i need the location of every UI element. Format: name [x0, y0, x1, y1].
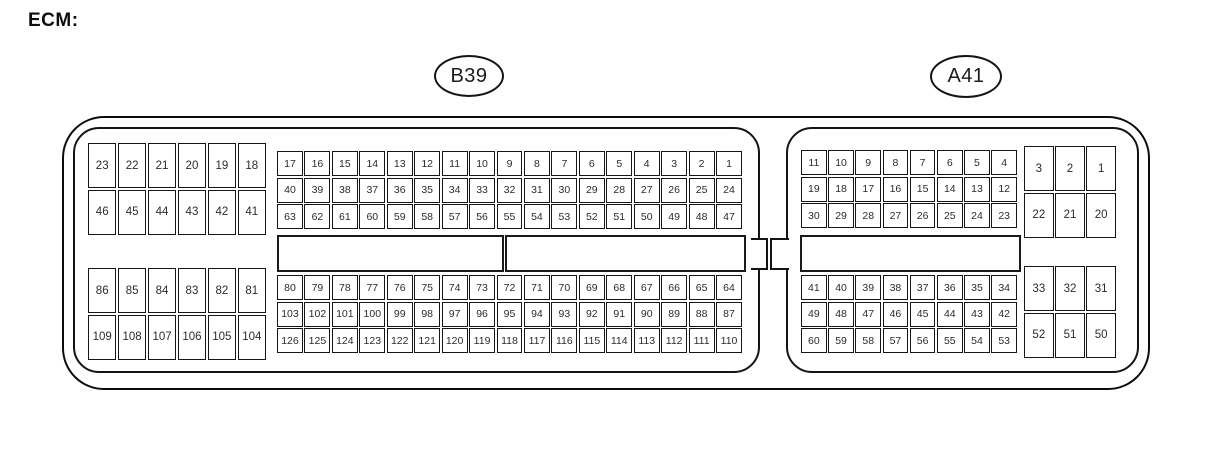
pin-53: 53 — [991, 328, 1017, 353]
pin-73: 73 — [469, 275, 495, 300]
pin-17: 17 — [855, 177, 881, 202]
pin-58: 58 — [855, 328, 881, 353]
pin-86: 86 — [88, 268, 116, 313]
pin-33: 33 — [1024, 266, 1054, 311]
pin-6: 6 — [937, 150, 963, 175]
pin-59: 59 — [828, 328, 854, 353]
pin-12: 12 — [414, 151, 440, 176]
pin-47: 47 — [855, 302, 881, 327]
pin-106: 106 — [178, 315, 206, 360]
pin-39: 39 — [855, 275, 881, 300]
pin-31: 31 — [1086, 266, 1116, 311]
pin-57: 57 — [442, 204, 468, 229]
pin-103: 103 — [277, 302, 303, 327]
pin-44: 44 — [148, 190, 176, 235]
pin-8: 8 — [883, 150, 909, 175]
pin-43: 43 — [964, 302, 990, 327]
pin-40: 40 — [277, 178, 303, 203]
pin-35: 35 — [414, 178, 440, 203]
connector-label-a41-text: A41 — [947, 65, 984, 88]
pin-36: 36 — [937, 275, 963, 300]
pin-7: 7 — [910, 150, 936, 175]
pin-126: 126 — [277, 328, 303, 353]
pin-125: 125 — [304, 328, 330, 353]
pin-74: 74 — [442, 275, 468, 300]
pin-109: 109 — [88, 315, 116, 360]
pin-46: 46 — [883, 302, 909, 327]
pin-123: 123 — [359, 328, 385, 353]
pin-119: 119 — [469, 328, 495, 353]
ecm-connector-pinout-diagram: ECM: B39 A41 232221201918464544434241 86… — [0, 0, 1210, 474]
pin-57: 57 — [883, 328, 909, 353]
pin-105: 105 — [208, 315, 236, 360]
b39-side-tab — [751, 238, 768, 270]
pin-107: 107 — [148, 315, 176, 360]
pin-97: 97 — [442, 302, 468, 327]
pin-110: 110 — [716, 328, 742, 353]
pin-26: 26 — [661, 178, 687, 203]
b39-top-pin-grid: 1716151413121110987654321403938373635343… — [277, 151, 742, 229]
pin-75: 75 — [414, 275, 440, 300]
pin-4: 4 — [991, 150, 1017, 175]
pin-89: 89 — [661, 302, 687, 327]
pin-52: 52 — [1024, 313, 1054, 358]
pin-28: 28 — [855, 203, 881, 228]
pin-33: 33 — [469, 178, 495, 203]
pin-116: 116 — [551, 328, 577, 353]
pin-29: 29 — [828, 203, 854, 228]
pin-53: 53 — [551, 204, 577, 229]
pin-108: 108 — [118, 315, 146, 360]
pin-9: 9 — [497, 151, 523, 176]
a41-key-slot — [800, 235, 1021, 272]
a41-top-pin-grid: 1110987654191817161514131230292827262524… — [801, 150, 1017, 228]
pin-96: 96 — [469, 302, 495, 327]
pin-49: 49 — [661, 204, 687, 229]
pin-27: 27 — [634, 178, 660, 203]
pin-24: 24 — [964, 203, 990, 228]
pin-117: 117 — [524, 328, 550, 353]
pin-45: 45 — [910, 302, 936, 327]
pin-11: 11 — [801, 150, 827, 175]
pin-55: 55 — [937, 328, 963, 353]
pin-12: 12 — [991, 177, 1017, 202]
pin-44: 44 — [937, 302, 963, 327]
pin-122: 122 — [387, 328, 413, 353]
pin-50: 50 — [1086, 313, 1116, 358]
pin-7: 7 — [551, 151, 577, 176]
pin-93: 93 — [551, 302, 577, 327]
pin-13: 13 — [387, 151, 413, 176]
pin-41: 41 — [801, 275, 827, 300]
pin-42: 42 — [991, 302, 1017, 327]
pin-43: 43 — [178, 190, 206, 235]
pin-22: 22 — [1024, 193, 1054, 238]
pin-36: 36 — [387, 178, 413, 203]
pin-69: 69 — [579, 275, 605, 300]
pin-25: 25 — [937, 203, 963, 228]
pin-59: 59 — [387, 204, 413, 229]
pin-38: 38 — [332, 178, 358, 203]
pin-5: 5 — [964, 150, 990, 175]
pin-84: 84 — [148, 268, 176, 313]
pin-124: 124 — [332, 328, 358, 353]
pin-118: 118 — [497, 328, 523, 353]
pin-1: 1 — [716, 151, 742, 176]
pin-29: 29 — [579, 178, 605, 203]
pin-64: 64 — [716, 275, 742, 300]
pin-88: 88 — [689, 302, 715, 327]
pin-101: 101 — [332, 302, 358, 327]
pin-61: 61 — [332, 204, 358, 229]
pin-10: 10 — [828, 150, 854, 175]
pin-14: 14 — [937, 177, 963, 202]
pin-31: 31 — [524, 178, 550, 203]
pin-90: 90 — [634, 302, 660, 327]
pin-56: 56 — [910, 328, 936, 353]
pin-60: 60 — [359, 204, 385, 229]
b39-left-bottom-pin-block: 868584838281109108107106105104 — [88, 268, 266, 360]
pin-99: 99 — [387, 302, 413, 327]
pin-62: 62 — [304, 204, 330, 229]
pin-56: 56 — [469, 204, 495, 229]
pin-95: 95 — [497, 302, 523, 327]
pin-15: 15 — [332, 151, 358, 176]
pin-2: 2 — [689, 151, 715, 176]
pin-81: 81 — [238, 268, 266, 313]
pin-6: 6 — [579, 151, 605, 176]
pin-112: 112 — [661, 328, 687, 353]
pin-20: 20 — [1086, 193, 1116, 238]
connector-label-b39-text: B39 — [450, 65, 487, 88]
pin-63: 63 — [277, 204, 303, 229]
pin-79: 79 — [304, 275, 330, 300]
pin-25: 25 — [689, 178, 715, 203]
pin-10: 10 — [469, 151, 495, 176]
pin-104: 104 — [238, 315, 266, 360]
pin-46: 46 — [88, 190, 116, 235]
pin-54: 54 — [524, 204, 550, 229]
pin-58: 58 — [414, 204, 440, 229]
pin-60: 60 — [801, 328, 827, 353]
pin-35: 35 — [964, 275, 990, 300]
pin-50: 50 — [634, 204, 660, 229]
pin-52: 52 — [579, 204, 605, 229]
pin-83: 83 — [178, 268, 206, 313]
pin-3: 3 — [1024, 146, 1054, 191]
b39-bottom-pin-grid: 8079787776757473727170696867666564103102… — [277, 275, 742, 353]
pin-68: 68 — [606, 275, 632, 300]
pin-67: 67 — [634, 275, 660, 300]
b39-key-slot-right — [505, 235, 746, 272]
pin-48: 48 — [689, 204, 715, 229]
pin-16: 16 — [883, 177, 909, 202]
pin-30: 30 — [801, 203, 827, 228]
pin-37: 37 — [359, 178, 385, 203]
pin-115: 115 — [579, 328, 605, 353]
pin-2: 2 — [1055, 146, 1085, 191]
pin-18: 18 — [238, 143, 266, 188]
pin-82: 82 — [208, 268, 236, 313]
pin-17: 17 — [277, 151, 303, 176]
pin-11: 11 — [442, 151, 468, 176]
pin-34: 34 — [442, 178, 468, 203]
pin-78: 78 — [332, 275, 358, 300]
pin-120: 120 — [442, 328, 468, 353]
pin-51: 51 — [606, 204, 632, 229]
connector-label-b39: B39 — [434, 55, 504, 97]
pin-13: 13 — [964, 177, 990, 202]
pin-19: 19 — [208, 143, 236, 188]
pin-55: 55 — [497, 204, 523, 229]
pin-24: 24 — [716, 178, 742, 203]
pin-121: 121 — [414, 328, 440, 353]
pin-100: 100 — [359, 302, 385, 327]
pin-14: 14 — [359, 151, 385, 176]
pin-28: 28 — [606, 178, 632, 203]
pin-1: 1 — [1086, 146, 1116, 191]
pin-51: 51 — [1055, 313, 1085, 358]
pin-21: 21 — [148, 143, 176, 188]
pin-70: 70 — [551, 275, 577, 300]
pin-113: 113 — [634, 328, 660, 353]
pin-23: 23 — [88, 143, 116, 188]
pin-47: 47 — [716, 204, 742, 229]
pin-42: 42 — [208, 190, 236, 235]
pin-39: 39 — [304, 178, 330, 203]
pin-45: 45 — [118, 190, 146, 235]
pin-16: 16 — [304, 151, 330, 176]
pin-87: 87 — [716, 302, 742, 327]
pin-41: 41 — [238, 190, 266, 235]
pin-34: 34 — [991, 275, 1017, 300]
pin-114: 114 — [606, 328, 632, 353]
a41-bottom-pin-grid: 4140393837363534494847464544434260595857… — [801, 275, 1017, 353]
pin-21: 21 — [1055, 193, 1085, 238]
pin-102: 102 — [304, 302, 330, 327]
pin-66: 66 — [661, 275, 687, 300]
pin-54: 54 — [964, 328, 990, 353]
pin-8: 8 — [524, 151, 550, 176]
pin-37: 37 — [910, 275, 936, 300]
pin-72: 72 — [497, 275, 523, 300]
pin-19: 19 — [801, 177, 827, 202]
pin-9: 9 — [855, 150, 881, 175]
pin-111: 111 — [689, 328, 715, 353]
pin-38: 38 — [883, 275, 909, 300]
pin-76: 76 — [387, 275, 413, 300]
pin-22: 22 — [118, 143, 146, 188]
a41-right-top-pin-block: 321222120 — [1024, 146, 1116, 238]
pin-3: 3 — [661, 151, 687, 176]
b39-key-slot-left — [277, 235, 504, 272]
pin-32: 32 — [497, 178, 523, 203]
a41-side-tab — [770, 238, 789, 270]
pin-77: 77 — [359, 275, 385, 300]
pin-4: 4 — [634, 151, 660, 176]
pin-18: 18 — [828, 177, 854, 202]
pin-71: 71 — [524, 275, 550, 300]
pin-32: 32 — [1055, 266, 1085, 311]
pin-27: 27 — [883, 203, 909, 228]
pin-20: 20 — [178, 143, 206, 188]
pin-30: 30 — [551, 178, 577, 203]
pin-85: 85 — [118, 268, 146, 313]
page-title: ECM: — [28, 10, 79, 32]
pin-80: 80 — [277, 275, 303, 300]
a41-right-bottom-pin-block: 333231525150 — [1024, 266, 1116, 358]
pin-98: 98 — [414, 302, 440, 327]
b39-left-top-pin-block: 232221201918464544434241 — [88, 143, 266, 235]
connector-label-a41: A41 — [930, 55, 1002, 98]
pin-26: 26 — [910, 203, 936, 228]
pin-15: 15 — [910, 177, 936, 202]
pin-23: 23 — [991, 203, 1017, 228]
pin-5: 5 — [606, 151, 632, 176]
pin-49: 49 — [801, 302, 827, 327]
pin-48: 48 — [828, 302, 854, 327]
pin-65: 65 — [689, 275, 715, 300]
pin-92: 92 — [579, 302, 605, 327]
pin-94: 94 — [524, 302, 550, 327]
pin-91: 91 — [606, 302, 632, 327]
pin-40: 40 — [828, 275, 854, 300]
